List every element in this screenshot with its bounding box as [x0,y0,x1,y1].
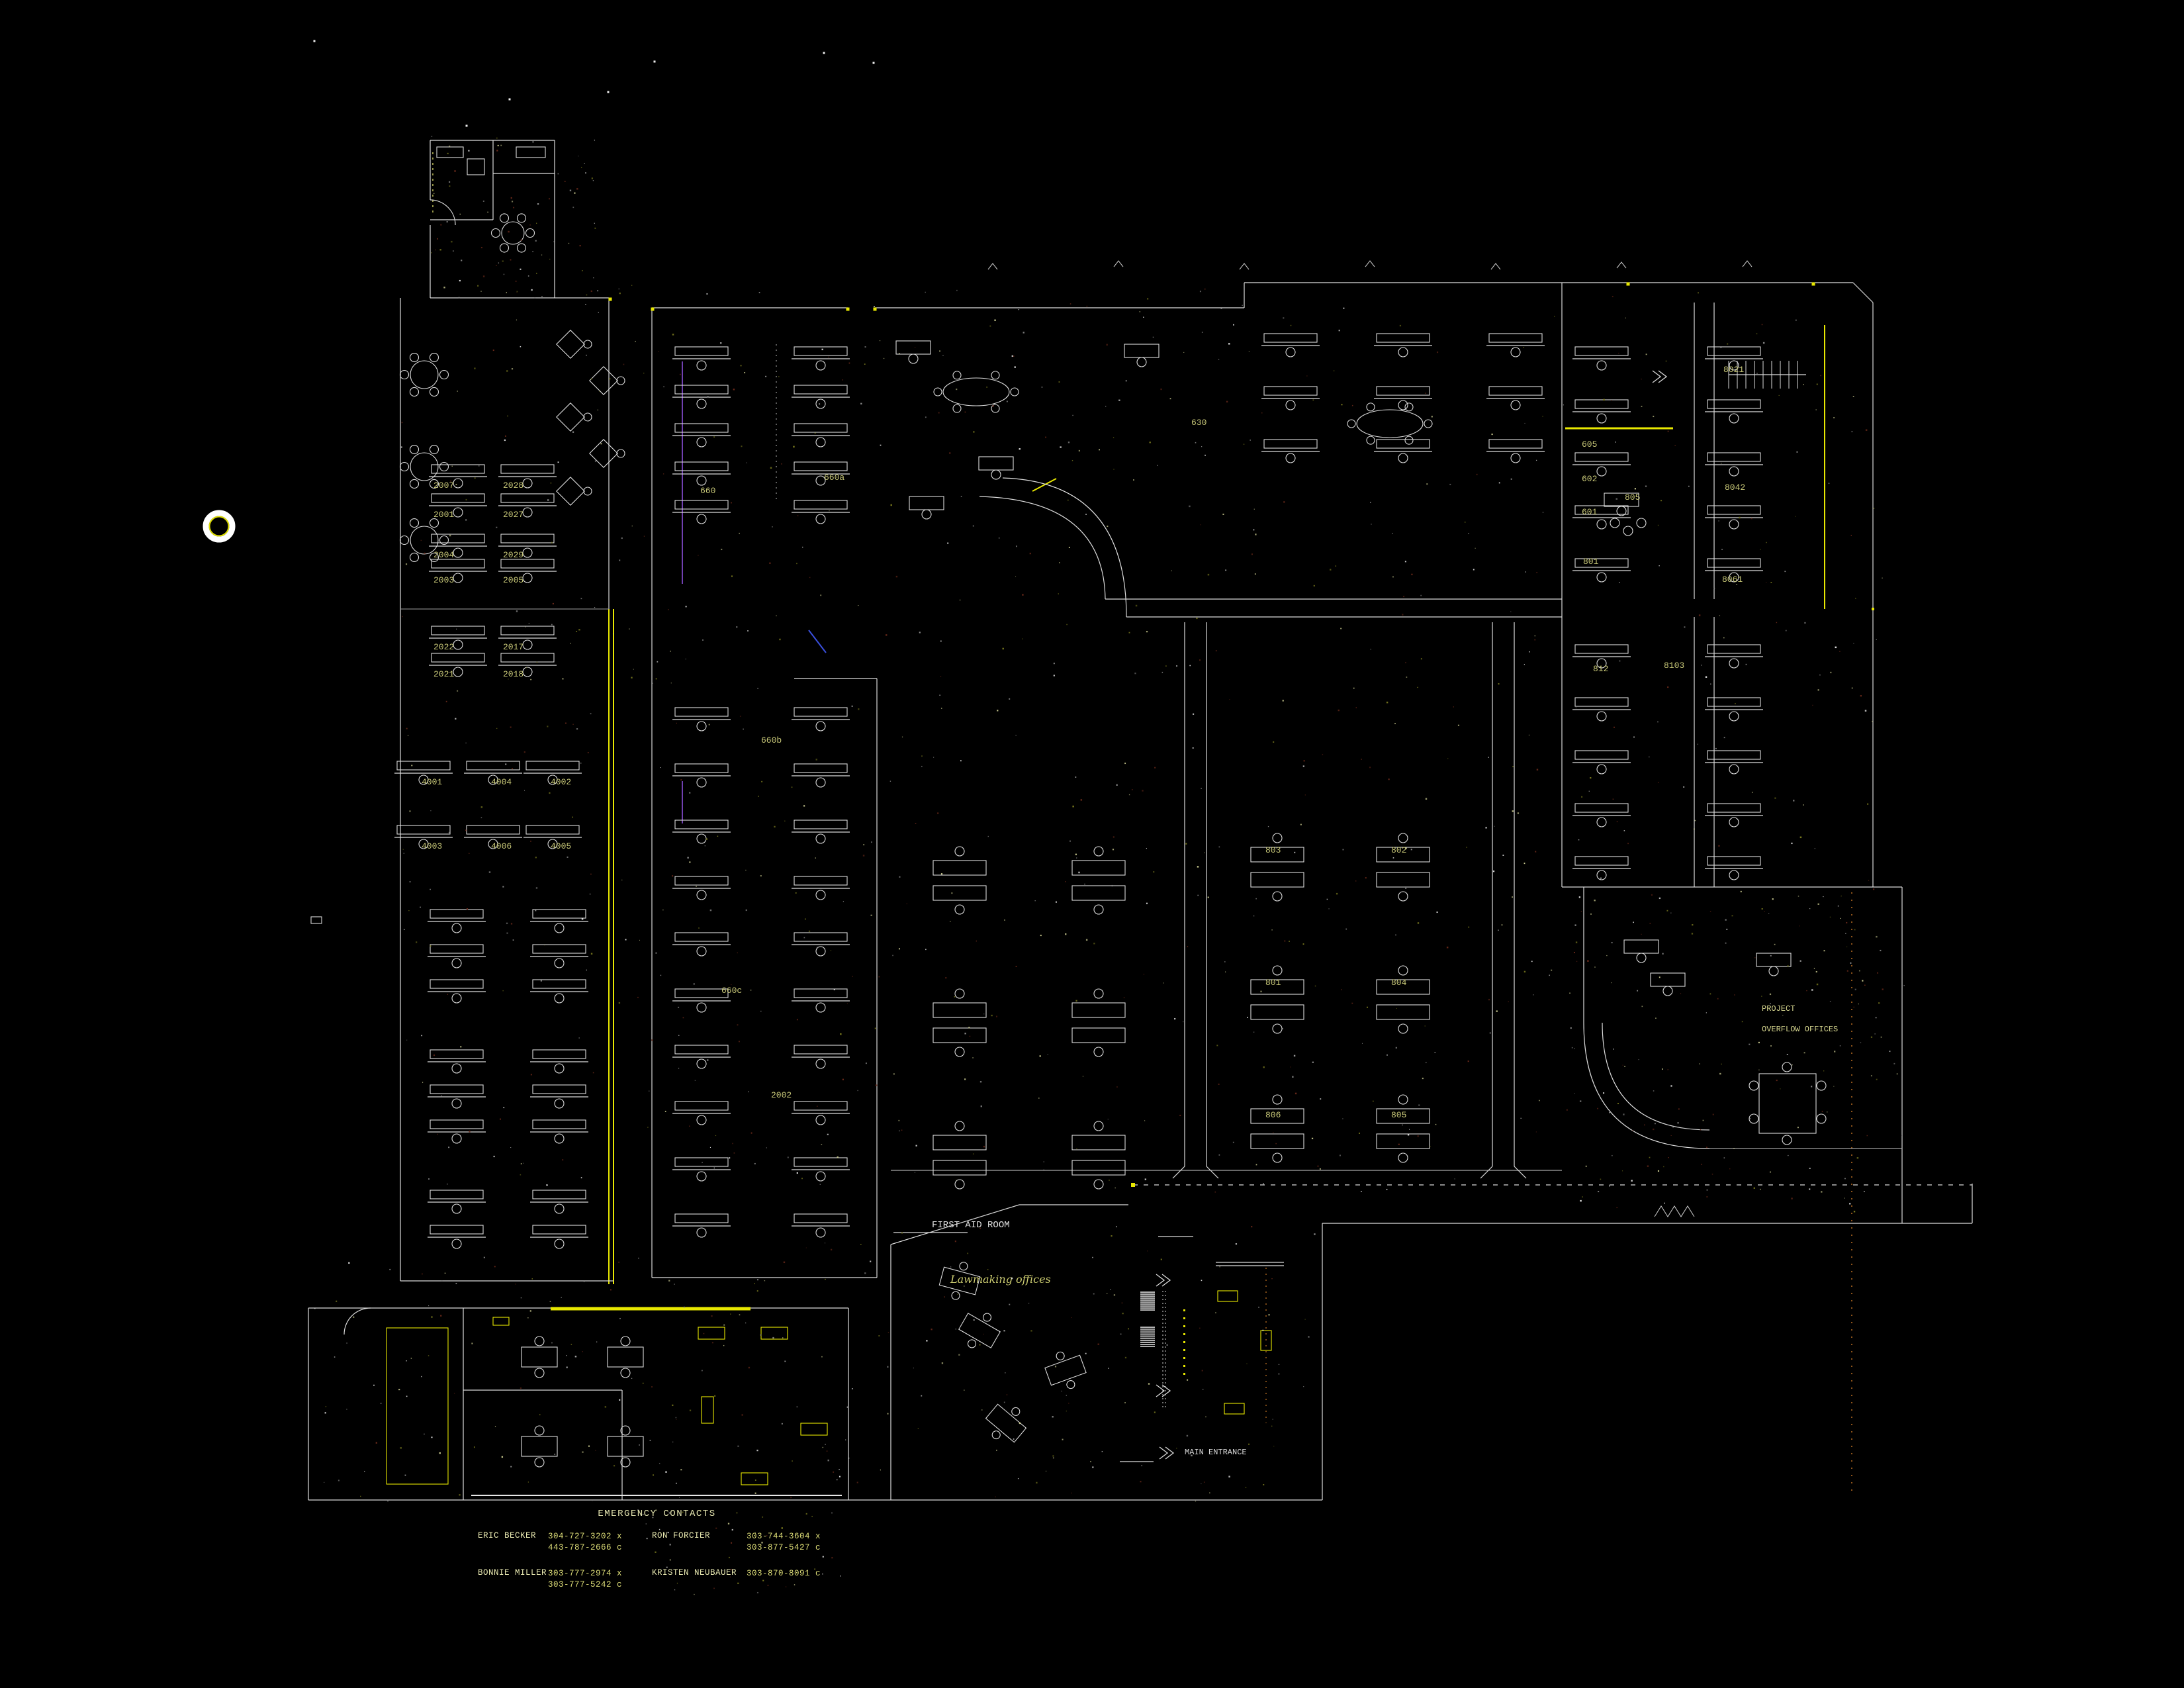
room-label: 806 [1265,1110,1281,1120]
room-label: 2017 [503,642,523,652]
contact-name: BONNIE MILLER [478,1568,547,1577]
room-label: 4003 [422,841,442,851]
room-label: 805 [1391,1110,1406,1120]
contact-name: KRISTEN NEUBAUER [652,1568,737,1577]
room-label: 602 [1582,474,1597,484]
room-label: 8042 [1725,483,1745,492]
room-label: 660a [824,473,844,483]
room-label: 660b [761,735,782,745]
room-label: 805 [1625,492,1640,502]
room-label: FIRST AID ROOM [932,1220,1010,1231]
room-label: 4004 [491,777,512,787]
room-label: 660 [700,486,715,496]
contact-phone: 443-787-2666 c [548,1542,622,1554]
room-label: 2003 [433,575,454,585]
cad-viewport: { "meta": {"w":3300,"h":2550,"bg":"#0000… [0,0,2184,1688]
labels-layer: 2007202820012027200420292003200520222017… [422,365,1838,1457]
room-label: MAIN ENTRANCE [1185,1448,1247,1457]
room-label: 2005 [503,575,523,585]
contact-phone: 303-877-5427 c [747,1542,821,1554]
room-label: 801 [1583,557,1599,567]
room-label: 2001 [433,510,454,520]
room-label: 2007 [433,481,454,491]
room-label: 2018 [503,669,523,679]
room-label: 812 [1593,664,1608,674]
column-marker [206,513,232,539]
room-label: 804 [1391,978,1407,988]
room-label: 630 [1191,418,1206,428]
room-label: PROJECT [1762,1004,1795,1013]
contact-name: RON FORCIER [652,1531,710,1540]
room-label: 8021 [1723,365,1744,375]
room-label: 4002 [551,777,571,787]
contact-phone: 304-727-3202 x [548,1531,622,1542]
contacts-separator [471,1495,842,1496]
contacts-title: EMERGENCY CONTACTS [556,1509,758,1519]
room-label: 4001 [422,777,442,787]
room-label: Lawmaking offices [950,1273,1051,1286]
room-label: 8061 [1722,575,1743,585]
room-label: 2028 [503,481,523,491]
contact-phone: 303-777-2974 x [548,1568,622,1579]
room-label: 605 [1582,440,1597,449]
room-label: 2002 [771,1090,792,1100]
room-label: 8103 [1664,661,1684,671]
room-label: 2004 [433,550,454,560]
noise-layer [314,136,1905,1595]
room-label: 2029 [503,550,523,560]
symbols-layer [206,513,232,539]
room-label: 4005 [551,841,571,851]
room-label: 601 [1582,507,1598,517]
room-label: 802 [1391,845,1406,855]
room-label: 660c [721,986,742,996]
room-label: 2022 [433,642,454,652]
room-label: OVERFLOW OFFICES [1762,1025,1838,1034]
contact-phone: 303-870-8091 c [747,1568,821,1579]
contact-phone: 303-777-5242 c [548,1579,622,1591]
room-label: 2021 [433,669,454,679]
room-label: 2027 [503,510,523,520]
room-label: 803 [1265,845,1281,855]
contact-phone: 303-744-3604 x [747,1531,821,1542]
room-label: 4006 [491,841,512,851]
contact-name: ERIC BECKER [478,1531,536,1540]
room-label: 801 [1265,978,1281,988]
floor-plan-canvas: 2007202820012027200420292003200520222017… [0,0,2184,1688]
